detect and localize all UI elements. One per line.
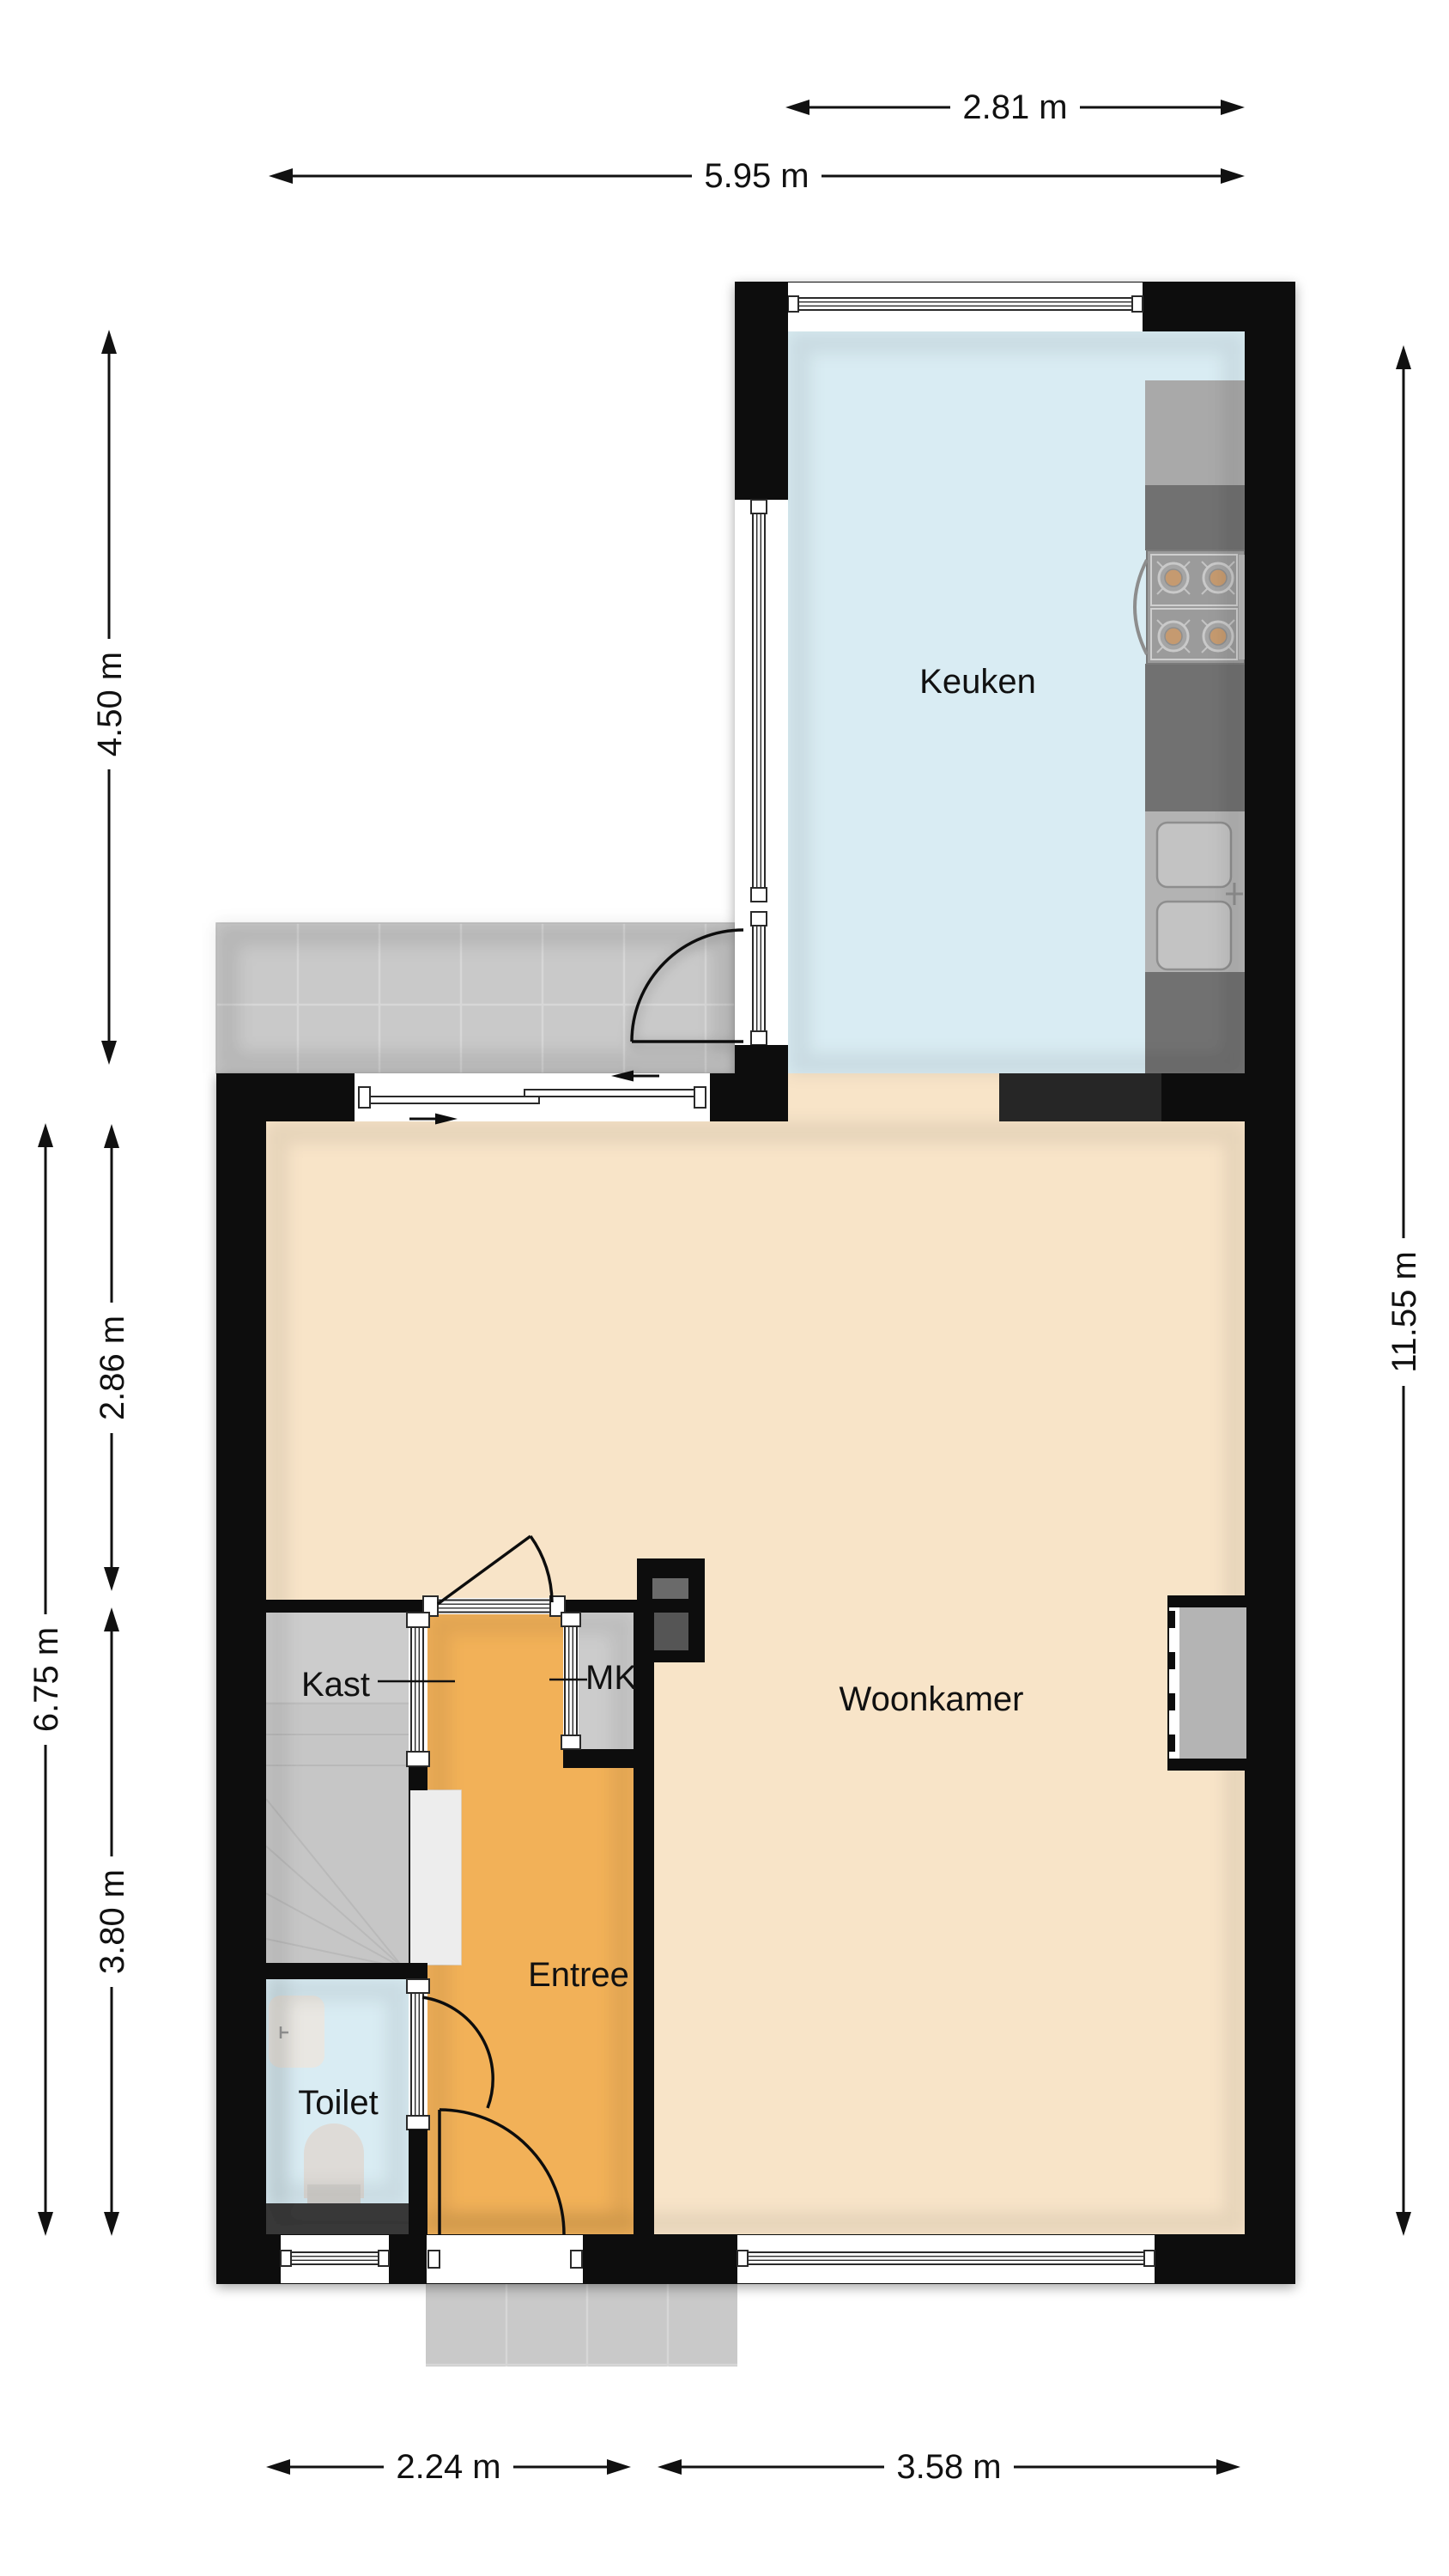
- svg-text:4.50 m: 4.50 m: [91, 652, 129, 756]
- svg-text:2.24 m: 2.24 m: [396, 2448, 500, 2486]
- svg-text:3.80 m: 3.80 m: [94, 1869, 131, 1974]
- svg-text:MK: MK: [585, 1659, 637, 1697]
- svg-text:Kast: Kast: [301, 1666, 370, 1704]
- svg-text:3.58 m: 3.58 m: [896, 2448, 1001, 2486]
- svg-text:2.86 m: 2.86 m: [94, 1315, 131, 1420]
- svg-text:6.75 m: 6.75 m: [27, 1627, 65, 1732]
- svg-text:Woonkamer: Woonkamer: [840, 1680, 1024, 1718]
- svg-text:2.81 m: 2.81 m: [962, 88, 1067, 126]
- svg-text:Entree: Entree: [528, 1956, 629, 1994]
- svg-text:11.55 m: 11.55 m: [1385, 1251, 1423, 1373]
- svg-text:Toilet: Toilet: [298, 2084, 378, 2122]
- svg-text:Keuken: Keuken: [919, 663, 1036, 701]
- svg-text:5.95 m: 5.95 m: [704, 157, 809, 195]
